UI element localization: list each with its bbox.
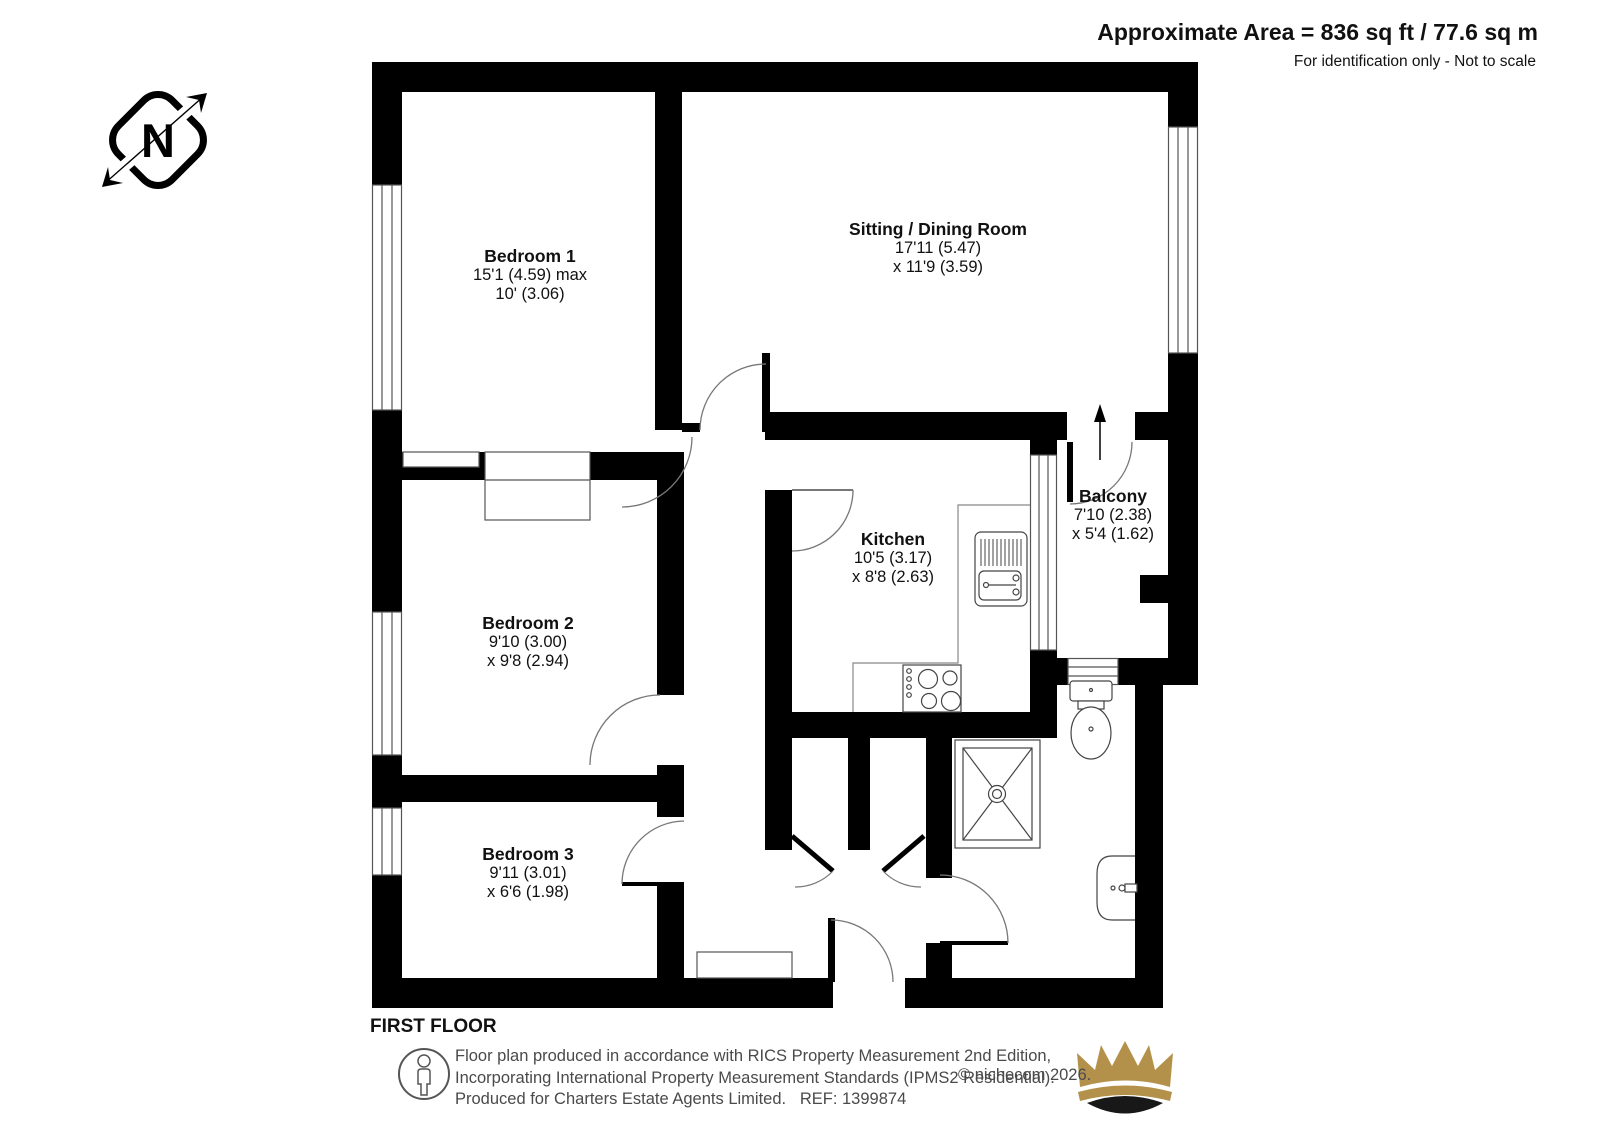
hall-storage (697, 952, 792, 978)
room-label-kitchen: Kitchen 10'5 (3.17) x 8'8 (2.63) (852, 530, 934, 587)
kitchen-hob (903, 665, 961, 712)
room-label-balcony: Balcony 7'10 (2.38) x 5'4 (1.62) (1072, 487, 1154, 544)
bathroom-door-arc (940, 875, 1008, 943)
approximate-area-text: Approximate Area = 836 sq ft / 77.6 sq m (1097, 19, 1538, 46)
kitchen-sink (975, 532, 1027, 606)
compass-north-letter: N (141, 114, 175, 167)
bedroom3-door-arc (622, 821, 684, 884)
compass: N (102, 86, 212, 193)
footer-line1: Floor plan produced in accordance with R… (455, 1046, 1055, 1068)
closet-left-door (792, 836, 833, 871)
shower-tray (955, 740, 1040, 848)
window-sitting-room (1169, 127, 1198, 353)
bedroom1-wardrobe (403, 452, 479, 467)
identification-note: For identification only - Not to scale (1294, 53, 1536, 71)
producer-person-icon (399, 1049, 449, 1099)
footer-line3: Produced for Charters Estate Agents Limi… (455, 1089, 1055, 1111)
floorplan-page: N (0, 0, 1600, 1131)
copyright-text: © nichecom 2026. (958, 1066, 1091, 1085)
floor-plan-drawing: N (0, 0, 1600, 1131)
front-door-arc (831, 920, 893, 982)
bedroom2-door-arc (590, 695, 660, 765)
sitting-room-door-arc (700, 364, 766, 430)
basin (1097, 856, 1137, 920)
room-label-sitting-dining: Sitting / Dining Room 17'11 (5.47) x 11'… (849, 220, 1027, 277)
entrance-arrow-icon (1094, 404, 1106, 460)
built-in-wardrobe (485, 452, 590, 520)
floor-title: FIRST FLOOR (370, 1016, 497, 1038)
room-label-bedroom1: Bedroom 1 15'1 (4.59) max 10' (3.06) (473, 247, 587, 304)
window-bedroom2 (373, 612, 402, 755)
window-kitchen (1031, 455, 1057, 650)
toilet (1070, 681, 1112, 759)
crown-logo-icon (1077, 1041, 1173, 1114)
room-label-bedroom2: Bedroom 2 9'10 (3.00) x 9'8 (2.94) (482, 614, 573, 671)
kitchen-door-arc (792, 490, 853, 551)
wardrobes (403, 452, 792, 978)
room-label-bedroom3: Bedroom 3 9'11 (3.01) x 6'6 (1.98) (482, 845, 573, 902)
window-bedroom3 (373, 808, 402, 875)
closet-right-door (883, 836, 924, 871)
window-bedroom1 (373, 185, 402, 410)
